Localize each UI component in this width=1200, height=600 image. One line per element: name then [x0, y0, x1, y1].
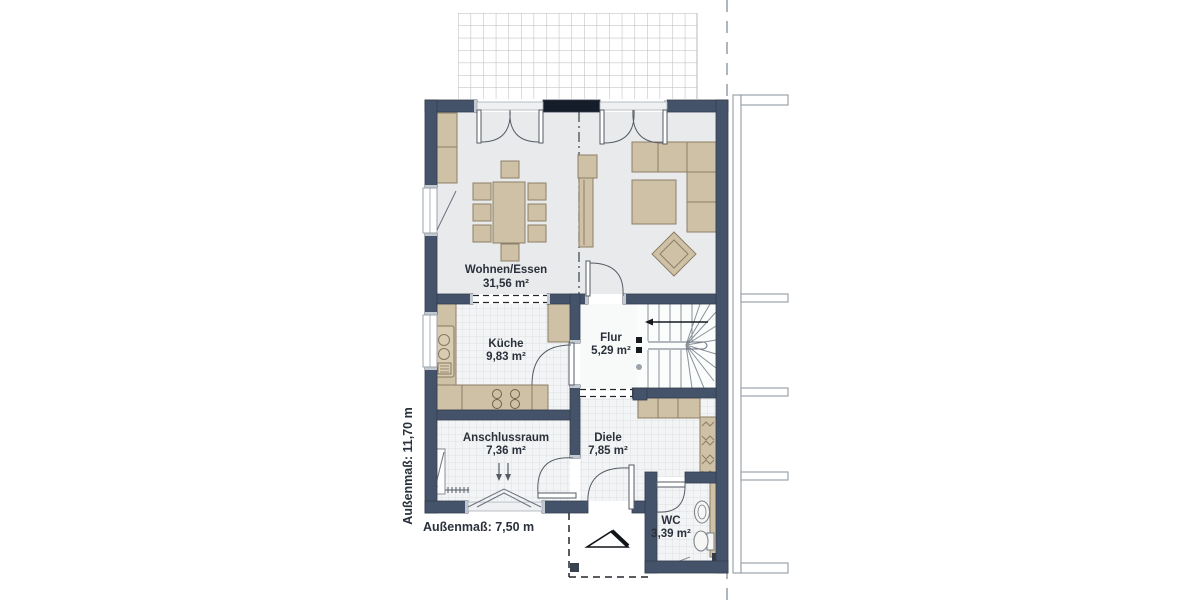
dining-chair: [528, 225, 546, 242]
dining-table: [493, 182, 525, 243]
dimension-width-label: Außenmaß: 7,50 m: [423, 520, 534, 534]
room-label-kueche: Küche: [488, 338, 523, 350]
window-kitchen: [423, 315, 437, 367]
room-area-wohnen-essen: 31,56 m²: [483, 278, 529, 290]
dining-chair: [473, 204, 491, 221]
wc-toilet: [694, 531, 708, 551]
dining-chair: [473, 225, 491, 242]
room-area-wc: 3,39 m²: [651, 528, 691, 540]
staircase: [636, 304, 716, 388]
floor-plan-drawing: Wohnen/Essen 31,56 m² Küche 9,83 m² Flur…: [0, 0, 1200, 600]
kitchen-sink: [435, 326, 454, 377]
room-label-wohnen-essen: Wohnen/Essen: [465, 264, 547, 276]
lintel-beam: [543, 100, 600, 112]
wardrobe: [700, 417, 717, 477]
dining-chair: [528, 204, 546, 221]
terrace-pergola-grid: [458, 13, 697, 99]
room-area-kueche: 9,83 m²: [486, 351, 526, 363]
porch-post: [570, 563, 579, 572]
dining-chair: [501, 244, 519, 261]
room-area-flur: 5,29 m²: [591, 345, 631, 357]
room-area-anschlussraum: 7,36 m²: [486, 445, 526, 457]
dimension-height-label: Außenmaß: 11,70 m: [401, 407, 415, 524]
dining-chair: [473, 183, 491, 200]
floor-entrance-porch: [569, 513, 645, 576]
sideboard: [437, 113, 457, 183]
room-label-flur: Flur: [600, 332, 622, 344]
wc-sink: [695, 501, 710, 523]
ottoman: [632, 180, 676, 224]
sofa-corner: [632, 142, 716, 232]
room-label-diele: Diele: [594, 432, 622, 444]
room-area-diele: 7,85 m²: [588, 445, 628, 457]
dining-chair: [501, 161, 519, 178]
dining-chair: [528, 183, 546, 200]
room-label-wc: WC: [661, 515, 680, 527]
neighbor-house-outline: [733, 95, 788, 573]
floor-plan-page: Wohnen/Essen 31,56 m² Küche 9,83 m² Flur…: [0, 0, 1200, 600]
diele-cabinet: [638, 398, 700, 418]
room-label-anschlussraum: Anschlussraum: [463, 432, 549, 444]
